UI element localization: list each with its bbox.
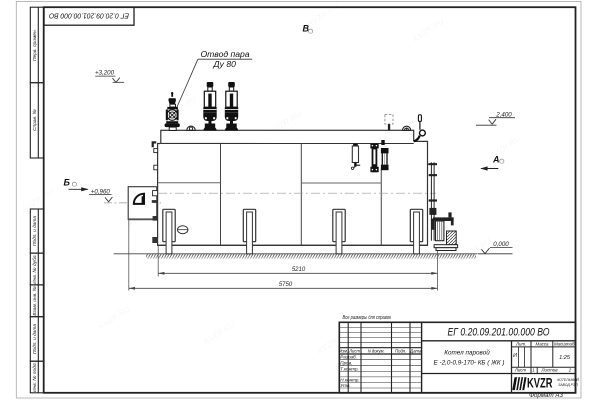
svg-text:2: 2 bbox=[568, 368, 572, 373]
svg-text:Лит.: Лит. bbox=[515, 342, 526, 347]
svg-text:ЕГ 0.20.09.201.00.000 ВО: ЕГ 0.20.09.201.00.000 ВО bbox=[448, 327, 550, 339]
svg-text:+3,200: +3,200 bbox=[95, 70, 115, 77]
svg-text:Е -2,0-0,9-170- КБ ( ЖК ): Е -2,0-0,9-170- КБ ( ЖК ) bbox=[434, 360, 505, 367]
svg-text:Все размеры для справок: Все размеры для справок bbox=[343, 315, 392, 321]
svg-text:Листов: Листов bbox=[541, 368, 559, 373]
svg-text:КОТЕЛЬНЫЙ: КОТЕЛЬНЫЙ bbox=[557, 378, 579, 382]
svg-text:ЕГ 0.20.09.201.00.000 ВО: ЕГ 0.20.09.201.00.000 ВО bbox=[49, 12, 129, 21]
svg-text:Инв. № подл.: Инв. № подл. bbox=[32, 362, 38, 392]
svg-text:5210: 5210 bbox=[292, 267, 306, 273]
svg-text:Перв. примен.: Перв. примен. bbox=[32, 29, 38, 61]
svg-text:Отвод пара: Отвод пара bbox=[200, 49, 249, 59]
svg-text:Пров.: Пров. bbox=[340, 361, 352, 366]
svg-text:Подп.: Подп. bbox=[395, 348, 406, 353]
svg-text:А: А bbox=[492, 154, 500, 164]
svg-text:Взам. инв. №: Взам. инв. № bbox=[32, 286, 38, 316]
svg-text:Б: Б bbox=[64, 178, 71, 188]
svg-text:ЗАВОД РЭП: ЗАВОД РЭП bbox=[558, 383, 578, 387]
svg-text:И: И bbox=[513, 353, 517, 359]
svg-text:0,000: 0,000 bbox=[493, 241, 509, 248]
svg-text:Подп. и дата: Подп. и дата bbox=[32, 216, 38, 246]
svg-text:N докум.: N докум. bbox=[368, 348, 385, 353]
svg-text:Дата: Дата bbox=[409, 348, 422, 353]
svg-text:Т.контр.: Т.контр. bbox=[340, 366, 359, 371]
svg-text:Котел паровой: Котел паровой bbox=[444, 349, 490, 357]
svg-text:Масштаб: Масштаб bbox=[554, 342, 575, 347]
svg-text:1:25: 1:25 bbox=[559, 355, 571, 361]
svg-text:Подп. и дата: Подп. и дата bbox=[32, 324, 38, 354]
svg-text:Инв. № дубл.: Инв. № дубл. bbox=[32, 254, 38, 284]
svg-text:Лист: Лист bbox=[348, 348, 360, 353]
svg-text:Ду 80: Ду 80 bbox=[212, 59, 236, 69]
svg-text:Масса: Масса bbox=[536, 342, 550, 347]
svg-text:Разраб.: Разраб. bbox=[340, 355, 357, 360]
svg-text:Утв.: Утв. bbox=[340, 383, 350, 388]
svg-text:Лист: Лист bbox=[514, 368, 527, 373]
svg-text:Изм.: Изм. bbox=[339, 348, 348, 353]
svg-text:Справ. №: Справ. № bbox=[32, 109, 38, 131]
svg-text:Н.контр.: Н.контр. bbox=[340, 378, 359, 383]
svg-text:5750: 5750 bbox=[279, 282, 293, 288]
svg-text:Формат А3: Формат А3 bbox=[529, 392, 563, 399]
svg-text:KVZR: KVZR bbox=[527, 376, 553, 391]
